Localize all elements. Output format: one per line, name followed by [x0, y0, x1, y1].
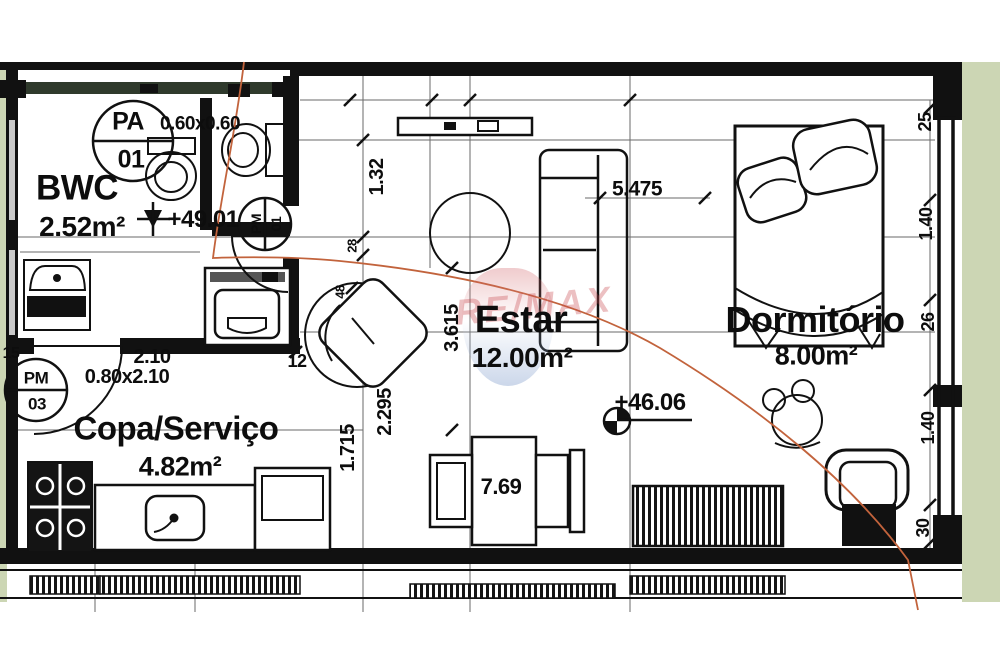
dim-tick-12: 12 [287, 352, 306, 370]
corner-unit [305, 274, 432, 393]
tag-pa01-top: PA [112, 110, 144, 135]
room-area-estar: 12.00m² [472, 344, 573, 372]
level-estar: +46.06 [614, 391, 685, 415]
dim-estar-height: 3.615 [442, 304, 462, 352]
dim-right-2: 1.40 [917, 207, 935, 240]
tag-pa01-bottom: 01 [118, 148, 145, 173]
dim-estar-v2: 1.715 [338, 424, 358, 472]
level-bwc: +49.01 [167, 208, 238, 232]
dim-copa-door-width: 2.10 [134, 347, 171, 367]
dim-table: 7.69 [481, 476, 522, 498]
room-area-dormitorio: 8.00m² [775, 343, 858, 370]
room-area-bwc: 2.52m² [39, 213, 125, 241]
tag-pm03-bottom: 03 [28, 396, 46, 413]
dim-tick-48: 48 [334, 285, 347, 298]
bottom-band [0, 570, 962, 598]
tag-pm01-top: PM [249, 214, 263, 234]
room-name-bwc: BWC [36, 171, 118, 206]
dim-right-3: 26 [919, 312, 937, 331]
right-window [936, 118, 956, 517]
nightstand [842, 504, 896, 546]
washing-machine [205, 268, 290, 345]
shelf [398, 118, 532, 135]
kitchen-counter-sink [95, 485, 255, 550]
dim-right-1: 25 [916, 112, 934, 131]
desk-chair [763, 380, 822, 448]
room-name-dormitorio: Dormitório [726, 302, 905, 338]
dim-tick-28: 28 [346, 239, 359, 252]
dim-bwc-window: 0.60x0.60 [160, 115, 240, 134]
floor-plan: RE/MAX BWC 2.52m² Copa/Serviço 4.82m² Es… [0, 0, 1000, 667]
fridge [255, 468, 330, 550]
tag-pm01-bottom: 01 [269, 217, 283, 232]
room-name-estar: Estar [475, 301, 568, 339]
bwc-window [0, 80, 292, 98]
dim-estar-v1: 2.295 [375, 388, 395, 436]
level-marker-bwc [137, 202, 170, 236]
room-name-copa: Copa/Serviço [74, 412, 279, 445]
washbasin [24, 260, 90, 330]
radiator-hatch [633, 486, 783, 546]
tag-pm03-top: PM [24, 370, 49, 387]
dim-right-5: 30 [914, 518, 932, 537]
room-area-copa: 4.82m² [139, 454, 222, 481]
toilet [146, 138, 196, 200]
dim-estar-width: 5.475 [612, 179, 662, 200]
dim-estar-top: 1.32 [367, 159, 387, 196]
dim-tick-15: 15 [3, 346, 20, 362]
dim-copa-door: 0.80x2.10 [85, 367, 169, 387]
stove [28, 462, 92, 552]
dim-right-4: 1.40 [919, 411, 937, 444]
